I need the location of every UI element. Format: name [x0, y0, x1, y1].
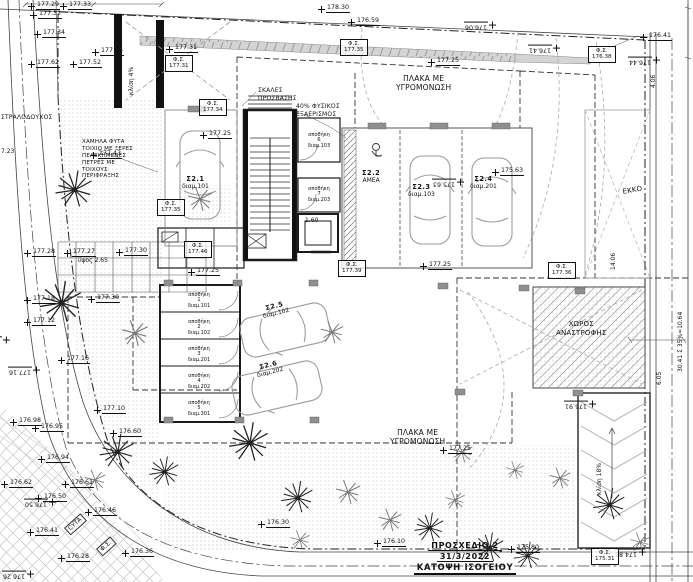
street-light-marker: Φ.Σ.175.31: [591, 548, 619, 565]
dimension-label: ύψος 2.65: [78, 258, 108, 264]
spot-elevation-marker: 177.25: [420, 262, 452, 270]
street-light-marker: Φ.Σ.177.39: [338, 260, 366, 277]
parking-space-label: Σ2.2ΑΜΕΑ: [362, 170, 380, 184]
spot-elevation-marker: 176.59: [348, 18, 380, 26]
spot-elevation-marker: 177.18: [24, 296, 56, 304]
survey-cross-icon: [508, 546, 515, 553]
spot-elevation-marker: 177.25: [188, 268, 220, 276]
survey-cross-icon: [94, 407, 101, 414]
spot-elevation-marker: 174.85: [614, 548, 646, 556]
survey-cross-icon: [3, 336, 10, 343]
spot-elevation-marker: 176.95: [32, 424, 64, 432]
spot-elevation-marker: 176.60: [110, 429, 142, 437]
dimension-label: 1.60: [305, 218, 318, 224]
drawing-title: ΠΡΟΣΧΕΔΙΟ 2: [428, 541, 501, 551]
survey-cross-icon: [166, 46, 173, 53]
spot-elevation-marker: 177.12: [24, 318, 56, 326]
spot-elevation-marker: 176.50: [24, 498, 56, 506]
spot-elevation-marker: 177.65: [92, 48, 124, 56]
spot-elevation-marker: 176.44: [628, 56, 660, 64]
survey-cross-icon: [28, 61, 35, 68]
parking-space-label: Σ2.3διαμ.103: [408, 184, 435, 198]
spot-elevation-marker: 175.91: [564, 400, 596, 408]
storage-room-label: αποθήκη3διαμ.201: [163, 343, 235, 367]
dimension-label: κλίση 4%: [129, 67, 135, 95]
storage-room-label: αποθήκη1διαμ.101: [163, 289, 235, 313]
street-light-marker: Φ.Σ.177.46: [184, 241, 212, 258]
survey-cross-icon: [200, 132, 207, 139]
survey-cross-icon: [420, 263, 427, 270]
spot-elevation-marker: 177.33: [60, 2, 92, 10]
dimension-label: 4.06: [651, 75, 657, 88]
spot-elevation-marker: 177.32: [30, 11, 62, 19]
spot-elevation-marker: 176.41: [27, 528, 59, 536]
survey-cross-icon: [62, 481, 69, 488]
survey-cross-icon: [640, 34, 647, 41]
annotation-label: Φ.Σ.: [96, 536, 117, 556]
spot-elevation-marker: 175.63: [432, 178, 464, 186]
parking-space-label: Σ2.6διαμ.202: [255, 359, 285, 380]
survey-cross-icon: [32, 425, 39, 432]
survey-cross-icon: [258, 521, 265, 528]
spot-elevation-marker: 177.00: [0, 335, 10, 344]
survey-cross-icon: [24, 319, 31, 326]
survey-cross-icon: [589, 400, 596, 407]
spot-elevation-marker: 177.62: [28, 60, 60, 68]
spot-elevation-marker: 176.41: [640, 33, 672, 41]
survey-cross-icon: [30, 12, 37, 19]
survey-cross-icon: [88, 296, 95, 303]
survey-cross-icon: [92, 49, 99, 56]
survey-cross-icon: [457, 178, 464, 185]
survey-cross-icon: [116, 249, 123, 256]
street-light-marker: Φ.Σ.177.35: [157, 199, 185, 216]
storage-room-label: αποθήκη2διαμ.102: [163, 316, 235, 340]
spot-elevation-marker: 177.31: [166, 45, 198, 53]
spot-elevation-marker: 176.46: [85, 508, 117, 516]
dimension-label: κλίση 18%: [597, 463, 603, 495]
storage-room-label: αποθήκη7διαμ.203: [299, 180, 339, 210]
survey-cross-icon: [10, 419, 17, 426]
spot-elevation-marker: 176.62: [1, 480, 33, 488]
annotation-label: ΣΚΑΛΕΣΠΡΟΣΒΑΣΗΣ: [258, 87, 297, 102]
survey-cross-icon: [49, 498, 56, 505]
spot-elevation-marker: 177.10: [94, 406, 126, 414]
dimension-label: 6.05: [657, 372, 663, 385]
survey-cross-icon: [1, 481, 8, 488]
parking-space-label: Σ2.4διαμ.201: [470, 176, 497, 190]
survey-cross-icon: [64, 250, 71, 257]
street-light-marker: Φ.Σ.177.35: [340, 39, 368, 56]
survey-cross-icon: [348, 19, 355, 26]
survey-cross-icon: [33, 366, 40, 373]
parking-space-label: Σ2.1διαμ.101: [182, 176, 209, 190]
annotation-label: ΕΚΚΟ: [622, 185, 643, 197]
survey-cross-icon: [639, 548, 646, 555]
spot-elevation-marker: 177.25: [440, 446, 472, 454]
survey-cross-icon: [188, 269, 195, 276]
annotation-label: ΠΛΑΚΑ ΜΕΥΓΡΟΜΟΝΩΣΗ: [396, 74, 451, 93]
drawing-subtitle: ΚΑΤΟΨΗ ΙΣΟΓΕΙΟΥ: [414, 563, 516, 575]
survey-cross-icon: [24, 250, 31, 257]
survey-cross-icon: [374, 540, 381, 547]
spot-elevation-marker: 177.25: [200, 131, 232, 139]
spot-elevation-marker: 176.61: [62, 480, 94, 488]
spot-elevation-marker: 175.80: [508, 545, 540, 553]
annotation-label: ΠΛΑΚΑ ΜΕΥΓΡΟΜΟΝΩΣΗ: [390, 428, 445, 447]
survey-cross-icon: [27, 529, 34, 536]
street-light-marker: Φ.Σ.177.36: [548, 262, 576, 279]
spot-elevation-marker: 177.30: [88, 295, 120, 303]
street-light-marker: Φ.Σ.177.31: [165, 55, 193, 72]
street-light-marker: Φ.Σ.177.34: [199, 99, 227, 116]
spot-elevation-marker: 177.25: [428, 58, 460, 66]
survey-cross-icon: [318, 6, 325, 13]
spot-elevation-marker: 177.16: [58, 356, 90, 364]
parking-space-label: Σ2.5διαμ.102: [261, 300, 291, 321]
drawing-date: 31/3/2022: [437, 552, 493, 562]
street-light-marker: Φ.Σ.176.38: [588, 46, 616, 63]
annotation-label: 40% ΦΥΣΙΚΟΣΕΞΑΕΡΙΣΜΟΣ: [296, 103, 340, 118]
storage-room-label: αποθήκη6διαμ.103: [299, 122, 339, 160]
survey-cross-icon: [28, 3, 35, 10]
survey-cross-icon: [70, 61, 77, 68]
annotation-label: ΧΩΡΟΣΑΝΑΣΤΡΟΦΗΣ: [556, 320, 606, 338]
spot-elevation-marker: 178.30: [318, 5, 350, 13]
annotation-label: ΣΤΡΑΛΟΔΟΥΧΟΣ: [1, 114, 53, 122]
spot-elevation-marker: 176.30: [258, 520, 290, 528]
survey-cross-icon: [110, 430, 117, 437]
dimension-label: 7.23: [1, 149, 14, 155]
survey-cross-icon: [653, 56, 660, 63]
spot-elevation-marker: 177.34: [34, 30, 66, 38]
site-plan-sheet: ΠΡΟΣΧΕΔΙΟ 2 31/3/2022 ΚΑΤΟΨΗ ΙΣΟΓΕΙΟΥ 17…: [0, 0, 693, 582]
spot-elevation-marker: 176.10: [374, 539, 406, 547]
spot-elevation-marker: 177.28: [24, 249, 56, 257]
survey-cross-icon: [38, 456, 45, 463]
survey-cross-icon: [58, 555, 65, 562]
survey-cross-icon: [24, 297, 31, 304]
storage-room-label: αποθήκη4διαμ.202: [163, 370, 235, 394]
storage-room-label: αποθήκη5διαμ.301: [163, 397, 235, 421]
spot-elevation-marker: 176.06: [464, 21, 496, 29]
survey-cross-icon: [553, 44, 560, 51]
survey-cross-icon: [58, 357, 65, 364]
spot-elevation-marker: 177.52: [70, 60, 102, 68]
survey-cross-icon: [60, 3, 67, 10]
spot-elevation-marker: 177.16: [8, 366, 40, 374]
spot-elevation-marker: 176.26: [2, 570, 34, 578]
survey-cross-icon: [85, 509, 92, 516]
dimension-label: 14.06: [611, 253, 617, 270]
survey-cross-icon: [27, 570, 34, 577]
survey-cross-icon: [428, 59, 435, 66]
spot-elevation-marker: 176.94: [38, 455, 70, 463]
survey-cross-icon: [440, 447, 447, 454]
plan-labels-layer: ΠΡΟΣΧΕΔΙΟ 2 31/3/2022 ΚΑΤΟΨΗ ΙΣΟΓΕΙΟΥ 17…: [0, 0, 693, 582]
annotation-label: CYTA: [64, 513, 87, 535]
survey-cross-icon: [489, 21, 496, 28]
survey-cross-icon: [34, 31, 41, 38]
dimension-label: 30.41 Σ 35%=10.64: [678, 312, 684, 372]
spot-elevation-marker: 176.36: [122, 549, 154, 557]
spot-elevation-marker: 176.28: [58, 554, 90, 562]
spot-elevation-marker: 177.30: [116, 248, 148, 256]
spot-elevation-marker: 176.41: [528, 44, 560, 52]
survey-cross-icon: [122, 550, 129, 557]
annotation-label: ΧΑΜΗΛΑ ΦΥΤΑΤΟΙΧΙΟ ΜΕ ΞΕΡΕΣΠΕΛΕΚΗΜΕΝΕΣΠΕΤ…: [82, 139, 133, 180]
